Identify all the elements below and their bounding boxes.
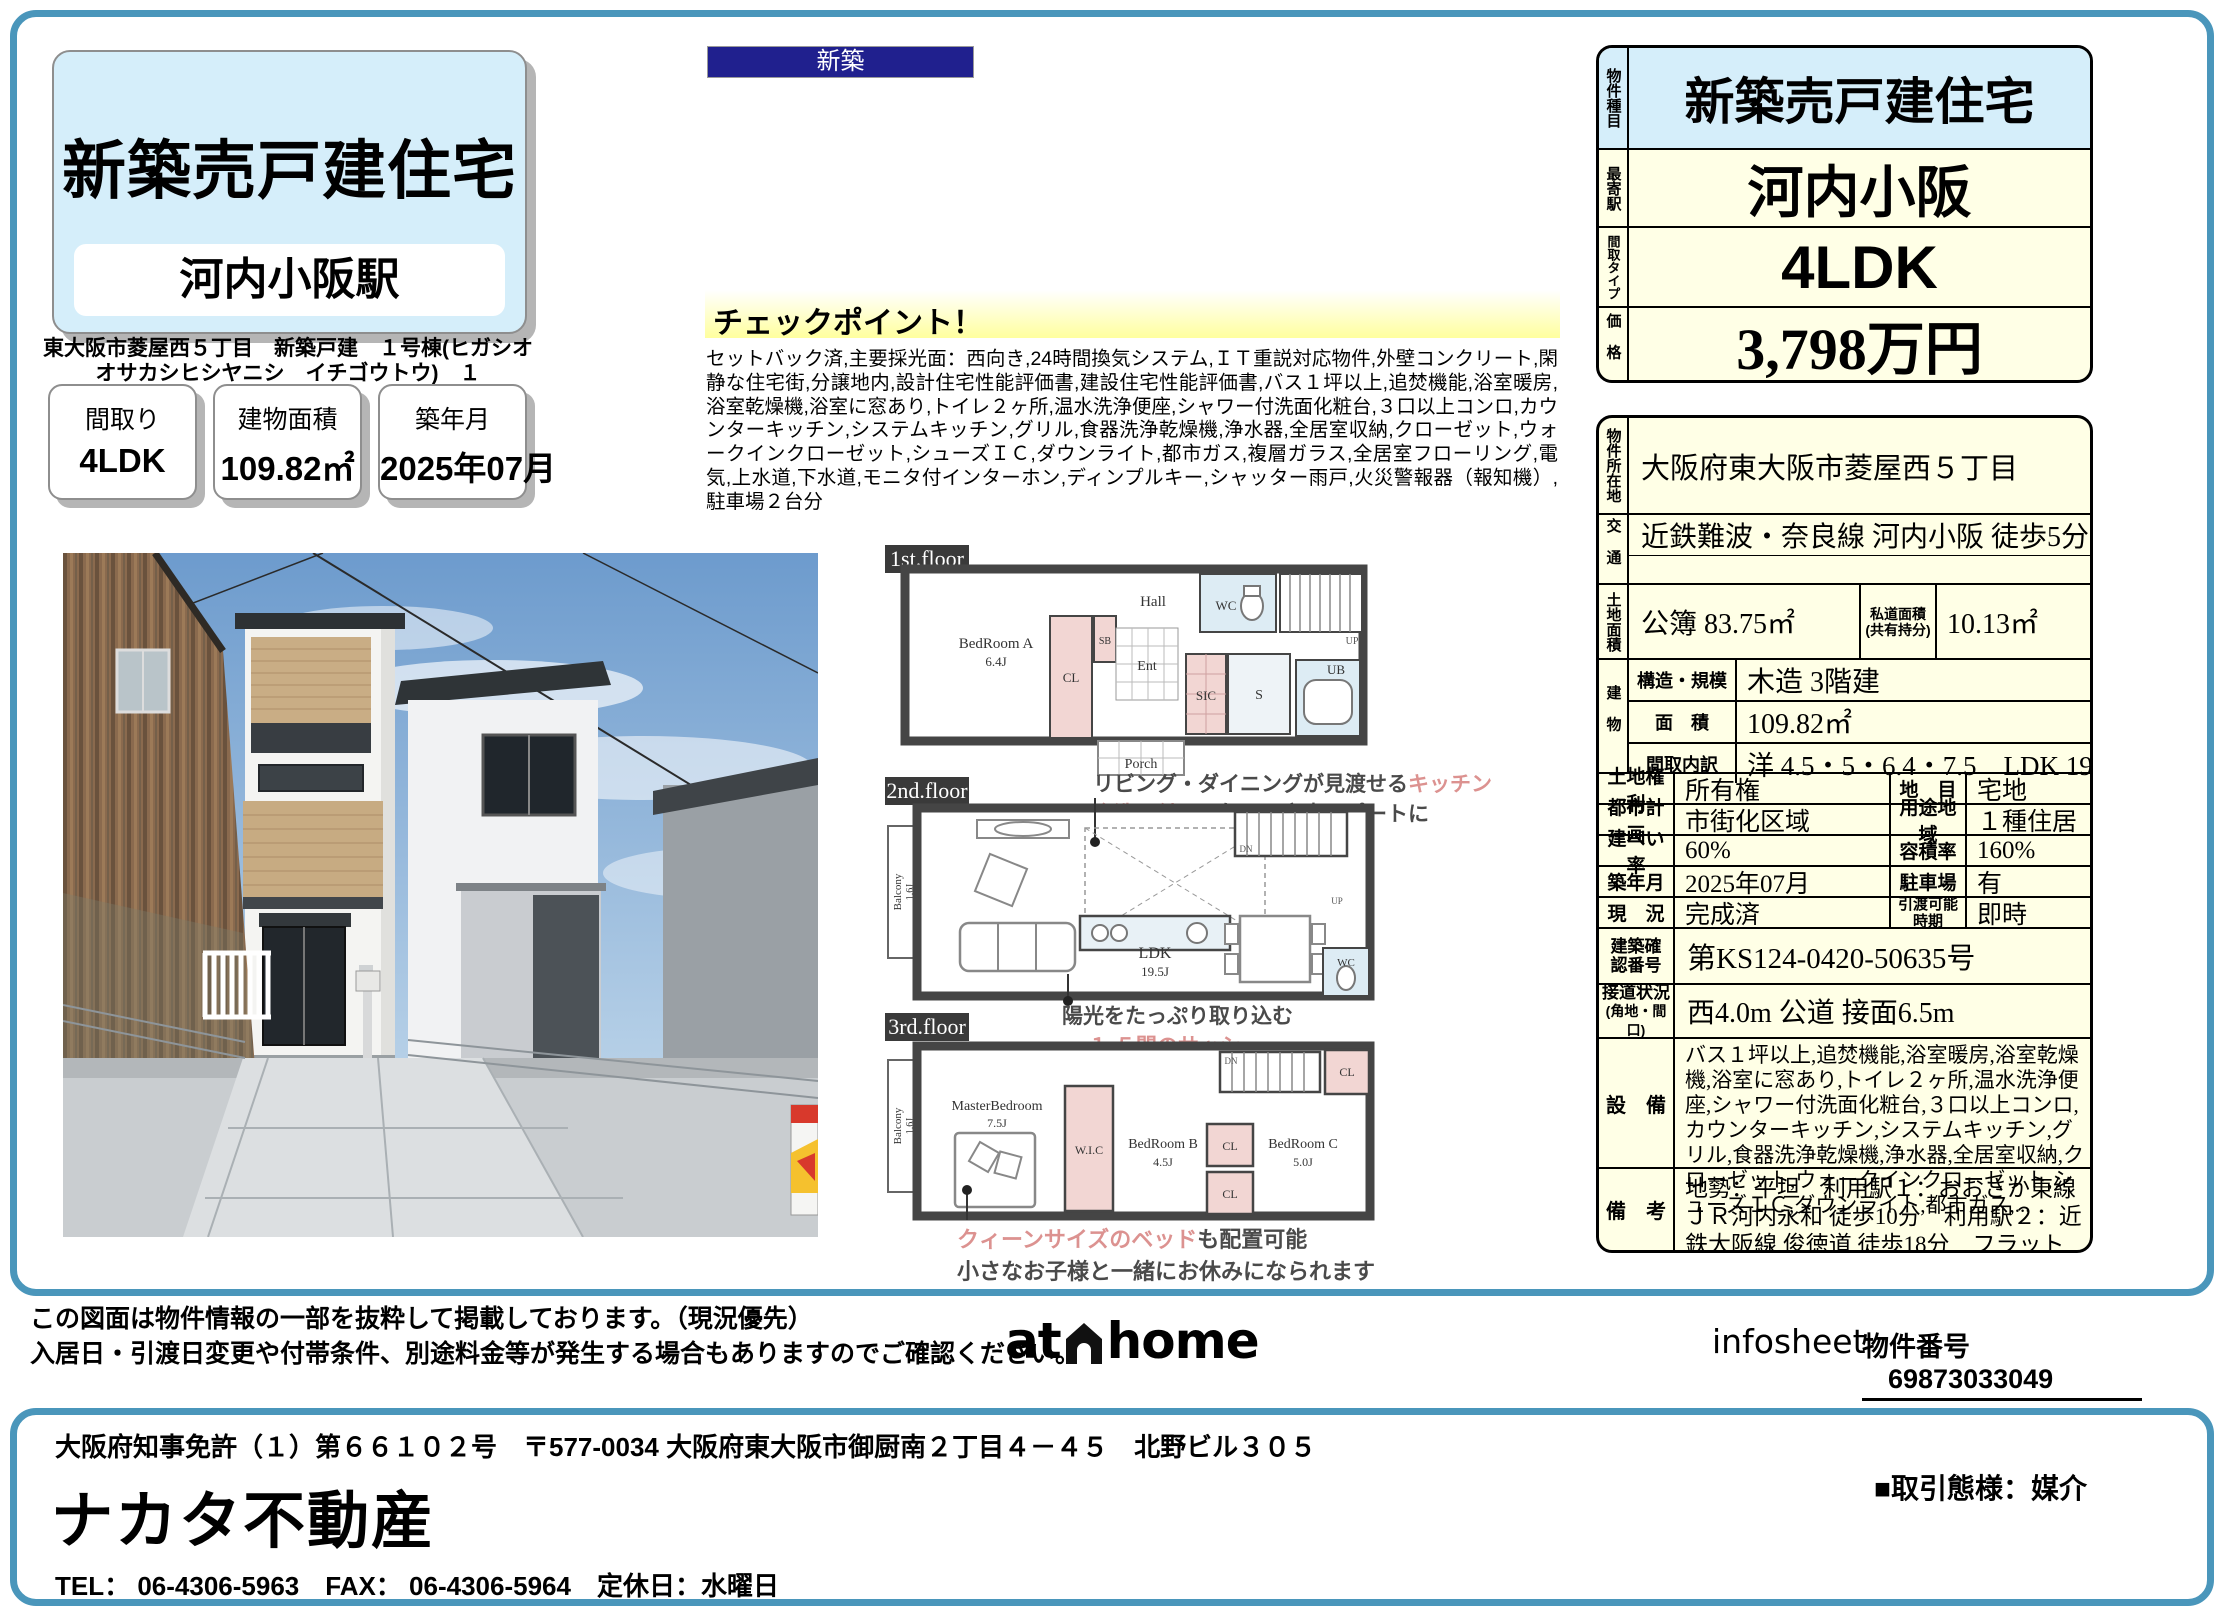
row-label: 価格 <box>1599 308 1629 380</box>
label-line: 接道状況 <box>1602 983 1670 1002</box>
disclaimer-line: 入居日・引渡日変更や付帯条件、別途料金等が発生する場合もありますのでご確認くださ… <box>30 1337 1080 1372</box>
room-label: Ent <box>1137 659 1157 674</box>
property-number: 物件番号 69873033049 <box>1862 1325 2142 1401</box>
access-line-empty <box>1629 556 2090 583</box>
logo-text-at: at <box>1005 1312 1061 1370</box>
label-line: (角地・間口) <box>1599 1002 1673 1040</box>
pair-value: 有 <box>1967 867 2090 896</box>
room-label: Balcony <box>892 873 904 910</box>
room-label: CL <box>1063 670 1080 685</box>
athome-house-icon <box>1066 1322 1102 1364</box>
row-label: 建築確認番号 <box>1599 929 1675 983</box>
room-size: 5.0J <box>1293 1155 1313 1169</box>
table-row-location: 物件所在地 大阪府東大阪市菱屋西５丁目 <box>1599 418 2090 513</box>
room-label: BedRoom A <box>959 636 1034 652</box>
room-label: LDK <box>1139 945 1172 962</box>
row-label: 土地面積 <box>1599 585 1629 658</box>
transaction-type: ■取引態様：媒介 <box>1874 1467 2087 1507</box>
row-label: 間取タイプ <box>1599 228 1629 306</box>
row-label: 物件所在地 <box>1599 418 1629 513</box>
room-label: S <box>1255 688 1263 703</box>
pair-label: 駐車場 <box>1891 867 1967 896</box>
table-row-access: 交通 近鉄難波・奈良線 河内小阪 徒歩5分 <box>1599 513 2090 583</box>
table-row-road: 接道状況 (角地・間口) 西4.0m 公道 接面6.5m <box>1599 983 2090 1037</box>
room-size: 19.5J <box>1141 964 1169 979</box>
equipment-list: バス１坪以上,追焚機能,浴室暖房,浴室乾燥機,浴室に窓あり,トイレ２ヶ所,温水洗… <box>1675 1039 2090 1167</box>
room-label: SB <box>1099 636 1112 647</box>
property-address-line: 東大阪市菱屋西５丁目 新築戸建 １号棟(ヒガシオオサカシヒシヤニシ イチゴウトウ… <box>42 336 534 386</box>
row-label: 物件種目 <box>1599 48 1629 148</box>
access-line: 近鉄難波・奈良線 河内小阪 徒歩5分 <box>1629 515 2090 556</box>
row-label: 設 備 <box>1599 1039 1675 1167</box>
pair-label: 引渡可能時期 <box>1891 898 1967 927</box>
station-name: 河内小阪駅 <box>74 244 505 316</box>
stat-label: 築年月 <box>380 400 525 436</box>
footer-disclaimer: この図面は物件情報の一部を抜粋して掲載しております。（現況優先） 入居日・引渡日… <box>30 1302 1080 1372</box>
pair-value: 2025年07月 <box>1675 867 1891 896</box>
property-number-label: 物件番号 <box>1862 1332 1970 1362</box>
page-title: 新築売戸建住宅 <box>54 120 525 212</box>
nearest-station: 河内小阪 <box>1629 150 2090 226</box>
new-build-badge: 新築 <box>707 46 974 78</box>
confirm-number: 第KS124-0420-50635号 <box>1675 929 2090 983</box>
pair-label: 用途地域 <box>1891 805 1967 834</box>
room-label: Balcony <box>892 1107 904 1144</box>
stat-label: 間取り <box>50 400 195 436</box>
stairs-label: UP <box>1346 636 1359 647</box>
stairs-label: DN <box>1225 1056 1238 1066</box>
room-label: WC <box>1216 598 1237 613</box>
annotation-text: クィーンサイズのベッド <box>957 1227 1197 1252</box>
table-row-pair: 建ぺい率 60% 容積率 160% <box>1599 834 2090 865</box>
disclaimer-line: この図面は物件情報の一部を抜粋して掲載しております。（現況優先） <box>30 1302 1080 1337</box>
pair-value: 宅地 <box>1967 774 2090 803</box>
logo-text-home: home <box>1107 1312 1259 1370</box>
stat-value: 109.82㎡ <box>215 442 360 490</box>
table-row-building: 建物 構造・規模 木造 3階建 面 積 109.82㎡ 間取内訳 洋 4.5・5… <box>1599 658 2090 772</box>
row-label: 最寄駅 <box>1599 150 1629 226</box>
title-card: 新築売戸建住宅 河内小阪駅 <box>52 50 527 334</box>
floorplan-2f: Balcony 1.6J LDK 19. <box>885 798 1385 1010</box>
checkpoint-title: チェックポイント！ <box>705 290 1560 342</box>
annotation-text: リビング・ダイニングが見渡せる <box>1093 773 1408 796</box>
room-size: 4.5J <box>1153 1155 1173 1169</box>
structure-label: 構造・規模 <box>1629 660 1737 700</box>
table-row: 間取タイプ 4LDK <box>1599 226 2090 306</box>
pair-value: 市街化区域 <box>1675 805 1891 834</box>
room-label: CL <box>1339 1065 1354 1079</box>
floorplan-1f: BedRoom A 6.4J CL SB Hall Ent SIC S WC U… <box>900 562 1370 780</box>
annotation-text: も配置可能 <box>1197 1227 1307 1252</box>
company-contact: TEL： 06-4306-5963 FAX： 06-4306-5964 定休日：… <box>55 1566 2207 1603</box>
annotation-text: キッチン <box>1408 773 1492 796</box>
annotation-text: 陽光をたっぷり取り込む <box>1062 1005 1293 1028</box>
detail-table: 物件所在地 大阪府東大阪市菱屋西５丁目 交通 近鉄難波・奈良線 河内小阪 徒歩5… <box>1596 415 2093 1253</box>
checkpoint-band: チェックポイント！ <box>705 290 1560 338</box>
room-size: 6.4J <box>985 654 1006 669</box>
room-label: W.I.C <box>1075 1143 1103 1157</box>
room-label: CL <box>1222 1187 1237 1201</box>
table-row: 物件種目 新築売戸建住宅 <box>1599 48 2090 148</box>
pair-value: 60% <box>1675 836 1891 865</box>
pair-label: 建ぺい率 <box>1599 836 1675 865</box>
room-label: UB <box>1327 662 1345 677</box>
table-row-confirm: 建築確認番号 第KS124-0420-50635号 <box>1599 927 2090 983</box>
annotation-text: 小さなお子様と一緒にお休みになられます <box>957 1259 1375 1284</box>
private-road-label: 私道面積 (共有持分) <box>1861 585 1937 658</box>
athome-logo: at home <box>1005 1312 1259 1370</box>
table-row: 価格 3,798万円 <box>1599 306 2090 380</box>
price: 3,798万円 <box>1629 308 2090 380</box>
stat-box-area: 建物面積 109.82㎡ <box>213 384 362 500</box>
land-area: 公簿 83.75㎡ <box>1629 585 1861 658</box>
table-row-notes: 備 考 地勢：平坦 利用駅１：おおさか東線 ＪＲ河内永和 徒歩10分 利用駅２：… <box>1599 1167 2090 1250</box>
property-type: 新築売戸建住宅 <box>1629 48 2090 148</box>
road-status: 西4.0m 公道 接面6.5m <box>1675 985 2090 1037</box>
property-number-value: 69873033049 <box>1888 1364 2053 1394</box>
row-label: 交通 <box>1599 515 1629 583</box>
stat-box-layout: 間取り 4LDK <box>48 384 197 500</box>
room-label: BedRoom C <box>1268 1137 1338 1152</box>
floorplan-3f: Balcony 1.6J MasterBedroom 7.5J W.I.C Be… <box>885 1038 1385 1223</box>
stat-value: 4LDK <box>50 442 195 480</box>
floor3-badge: 3rd.floor <box>885 1013 969 1041</box>
stat-value: 2025年07月 <box>380 442 525 490</box>
notes-text: 地勢：平坦 利用駅１：おおさか東線 ＪＲ河内永和 徒歩10分 利用駅２：近鉄大阪… <box>1675 1169 2090 1250</box>
checkpoint-body: セットバック済,主要採光面：西向き,24時間換気システム,ＩＴ重説対応物件,外壁… <box>706 348 1558 474</box>
table-row-land: 土地面積 公簿 83.75㎡ 私道面積 (共有持分) 10.13㎡ <box>1599 583 2090 658</box>
pair-label: 容積率 <box>1891 836 1967 865</box>
room-size: 7.5J <box>987 1116 1007 1130</box>
summary-table: 物件種目 新築売戸建住宅 最寄駅 河内小阪 間取タイプ 4LDK 価格 3,79… <box>1596 45 2093 383</box>
room-label: BedRoom B <box>1128 1137 1198 1152</box>
row-label: 接道状況 (角地・間口) <box>1599 985 1675 1037</box>
company-license: 大阪府知事免許（１）第６６１０２号 〒577-0034 大阪府東大阪市御厨南２丁… <box>55 1427 2207 1464</box>
pair-value: １種住居 <box>1967 805 2090 834</box>
room-label: MasterBedroom <box>952 1099 1043 1114</box>
pair-value: 完成済 <box>1675 898 1891 927</box>
room-label: Hall <box>1140 594 1166 610</box>
area-value: 109.82㎡ <box>1737 702 2093 742</box>
private-road-area: 10.13㎡ <box>1937 585 2090 658</box>
table-row-pair: 築年月 2025年07月 駐車場 有 <box>1599 865 2090 896</box>
pair-value: 160% <box>1967 836 2090 865</box>
stat-label: 建物面積 <box>215 400 360 436</box>
row-label: 備 考 <box>1599 1169 1675 1250</box>
structure-value: 木造 3階建 <box>1737 660 2093 700</box>
area-label: 面 積 <box>1629 702 1737 742</box>
property-photo <box>63 553 818 1237</box>
table-row-pair: 現 況 完成済 引渡可能時期 即時 <box>1599 896 2090 927</box>
company-frame: 大阪府知事免許（１）第６６１０２号 〒577-0034 大阪府東大阪市御厨南２丁… <box>10 1408 2214 1606</box>
pair-value: 即時 <box>1967 898 2090 927</box>
label-line: 私道面積 <box>1870 606 1926 622</box>
stat-box-built: 築年月 2025年07月 <box>378 384 527 500</box>
pair-label: 築年月 <box>1599 867 1675 896</box>
property-location: 大阪府東大阪市菱屋西５丁目 <box>1629 418 2090 513</box>
row-label: 建物 <box>1599 660 1629 772</box>
room-label: WC <box>1337 957 1355 969</box>
flyer-sheet: 新築売戸建住宅 河内小阪駅 東大阪市菱屋西５丁目 新築戸建 １号棟(ヒガシオオサ… <box>0 0 2224 1616</box>
infosheet-label: infosheet <box>1712 1322 1866 1361</box>
layout-type: 4LDK <box>1629 228 2090 306</box>
stairs-label: DN <box>1240 844 1253 854</box>
label-line: (共有持分) <box>1865 622 1930 638</box>
pair-value: 所有権 <box>1675 774 1891 803</box>
floor3-annotation: クィーンサイズのベッドも配置可能 小さなお子様と一緒にお休みになられます <box>957 1222 1375 1286</box>
room-label: SIC <box>1196 688 1216 703</box>
table-row-equipment: 設 備 バス１坪以上,追焚機能,浴室暖房,浴室乾燥機,浴室に窓あり,トイレ２ヶ所… <box>1599 1037 2090 1167</box>
stairs-label: UP <box>1331 896 1343 906</box>
room-label: CL <box>1222 1139 1237 1153</box>
table-row: 最寄駅 河内小阪 <box>1599 148 2090 226</box>
pair-label: 現 況 <box>1599 898 1675 927</box>
